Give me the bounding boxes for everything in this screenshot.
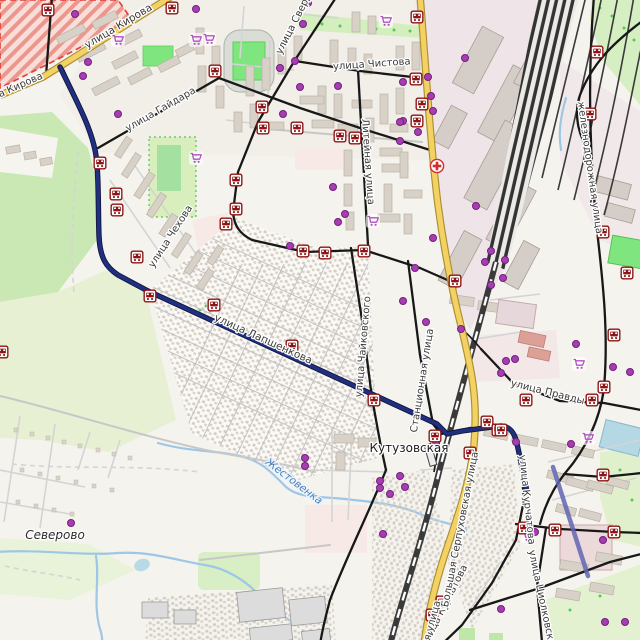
bus-stop-icon[interactable] xyxy=(257,122,269,134)
poi-marker[interactable] xyxy=(415,129,422,136)
bus-stop-icon[interactable] xyxy=(549,524,561,536)
poi-marker[interactable] xyxy=(488,248,495,255)
bus-stop-icon[interactable] xyxy=(621,267,633,279)
poi-marker[interactable] xyxy=(602,619,609,626)
bus-stop-icon[interactable] xyxy=(256,101,268,113)
poi-marker[interactable] xyxy=(503,358,510,365)
bus-stop-icon[interactable] xyxy=(410,73,422,85)
bus-stop-icon[interactable] xyxy=(166,2,178,14)
bus-stop-icon[interactable] xyxy=(481,416,493,428)
poi-marker[interactable] xyxy=(462,55,469,62)
map-canvas[interactable]: улица Кирова улица Кирова улица Гайдара … xyxy=(0,0,640,640)
poi-marker[interactable] xyxy=(115,111,122,118)
poi-marker[interactable] xyxy=(335,219,342,226)
poi-marker[interactable] xyxy=(68,520,75,527)
bus-stop-icon[interactable] xyxy=(291,122,303,134)
bus-stop-icon[interactable] xyxy=(110,188,122,200)
poi-marker[interactable] xyxy=(428,93,435,100)
bus-stop-icon[interactable] xyxy=(598,381,610,393)
bus-stop-icon[interactable] xyxy=(111,204,123,216)
bus-stop-icon[interactable] xyxy=(208,299,220,311)
poi-marker[interactable] xyxy=(377,485,384,492)
bus-stop-icon[interactable] xyxy=(591,46,603,58)
poi-marker[interactable] xyxy=(380,531,387,538)
shop-icon[interactable] xyxy=(202,32,216,46)
bus-stop-icon[interactable] xyxy=(411,11,423,23)
bus-stop-icon[interactable] xyxy=(0,346,8,358)
bus-stop-icon[interactable] xyxy=(349,132,361,144)
bus-stop-icon[interactable] xyxy=(144,290,156,302)
bus-stop-icon[interactable] xyxy=(358,245,370,257)
poi-marker[interactable] xyxy=(425,74,432,81)
bus-stop-icon[interactable] xyxy=(209,65,221,77)
bus-stop-icon[interactable] xyxy=(608,329,620,341)
poi-marker[interactable] xyxy=(610,364,617,371)
poi-marker[interactable] xyxy=(277,65,284,72)
bus-stop-icon[interactable] xyxy=(597,469,609,481)
poi-marker[interactable] xyxy=(482,259,489,266)
bus-stop-icon[interactable] xyxy=(297,245,309,257)
bus-stop-icon[interactable] xyxy=(411,115,423,127)
shop-icon[interactable] xyxy=(572,357,586,371)
poi-marker[interactable] xyxy=(430,235,437,242)
hospital-marker xyxy=(430,159,443,172)
station-label-kutuzovskaya: Кутузовская xyxy=(370,441,449,455)
bus-stop-icon[interactable] xyxy=(449,275,461,287)
poi-marker[interactable] xyxy=(397,473,404,480)
bus-stop-icon[interactable] xyxy=(334,130,346,142)
poi-marker[interactable] xyxy=(400,79,407,86)
poi-marker[interactable] xyxy=(622,619,629,626)
poi-marker[interactable] xyxy=(387,491,394,498)
hospital-icon[interactable] xyxy=(430,159,443,172)
bus-stop-icon[interactable] xyxy=(42,4,54,16)
bus-stop-icon[interactable] xyxy=(94,157,106,169)
bus-stop-icon[interactable] xyxy=(131,251,143,263)
shop-icon[interactable] xyxy=(189,33,203,47)
poi-marker[interactable] xyxy=(397,138,404,145)
poi-marker[interactable] xyxy=(488,282,495,289)
poi-marker[interactable] xyxy=(330,184,337,191)
map-viewport[interactable]: улица Кирова улица Кирова улица Гайдара … xyxy=(0,0,640,640)
bus-stop-icon[interactable] xyxy=(230,203,242,215)
bus-stop-icon[interactable] xyxy=(230,174,242,186)
poi-marker[interactable] xyxy=(80,73,87,80)
poi-marker[interactable] xyxy=(397,119,404,126)
poi-marker[interactable] xyxy=(400,298,407,305)
bus-stop-icon[interactable] xyxy=(368,394,380,406)
poi-marker[interactable] xyxy=(193,6,200,13)
poi-marker[interactable] xyxy=(342,211,349,218)
bus-stop-icon[interactable] xyxy=(416,98,428,110)
poi-marker[interactable] xyxy=(377,478,384,485)
shop-icon[interactable] xyxy=(366,214,380,228)
poi-marker[interactable] xyxy=(458,326,465,333)
poi-marker[interactable] xyxy=(423,319,430,326)
shop-icon[interactable] xyxy=(189,151,203,165)
poi-marker[interactable] xyxy=(600,537,607,544)
poi-marker[interactable] xyxy=(297,84,304,91)
poi-marker[interactable] xyxy=(412,265,419,272)
sports-pitch xyxy=(608,235,640,268)
place-label-severovo: Северово xyxy=(25,528,85,542)
poi-marker[interactable] xyxy=(502,257,509,264)
poi-marker[interactable] xyxy=(72,11,79,18)
poi-marker[interactable] xyxy=(287,243,294,250)
poi-marker[interactable] xyxy=(302,463,309,470)
poi-marker[interactable] xyxy=(302,455,309,462)
poi-marker[interactable] xyxy=(500,275,507,282)
poi-marker[interactable] xyxy=(292,58,299,65)
bus-stop-icon[interactable] xyxy=(220,218,232,230)
poi-marker[interactable] xyxy=(498,370,505,377)
poi-marker[interactable] xyxy=(280,111,287,118)
poi-marker[interactable] xyxy=(512,356,519,363)
bus-stop-icon[interactable] xyxy=(608,526,620,538)
poi-marker[interactable] xyxy=(335,83,342,90)
poi-marker[interactable] xyxy=(498,606,505,613)
poi-marker[interactable] xyxy=(430,108,437,115)
shop-icon[interactable] xyxy=(379,14,393,28)
bus-stop-icon[interactable] xyxy=(319,247,331,259)
poi-marker[interactable] xyxy=(473,203,480,210)
poi-marker[interactable] xyxy=(85,59,92,66)
poi-marker[interactable] xyxy=(402,484,409,491)
poi-marker[interactable] xyxy=(573,341,580,348)
poi-marker[interactable] xyxy=(513,439,520,446)
poi-marker[interactable] xyxy=(627,369,634,376)
shop-icon[interactable] xyxy=(581,431,595,445)
bus-stop-icon[interactable] xyxy=(520,394,532,406)
bus-stop-icon[interactable] xyxy=(586,394,598,406)
bus-stop-icon[interactable] xyxy=(495,424,507,436)
poi-marker[interactable] xyxy=(568,441,575,448)
